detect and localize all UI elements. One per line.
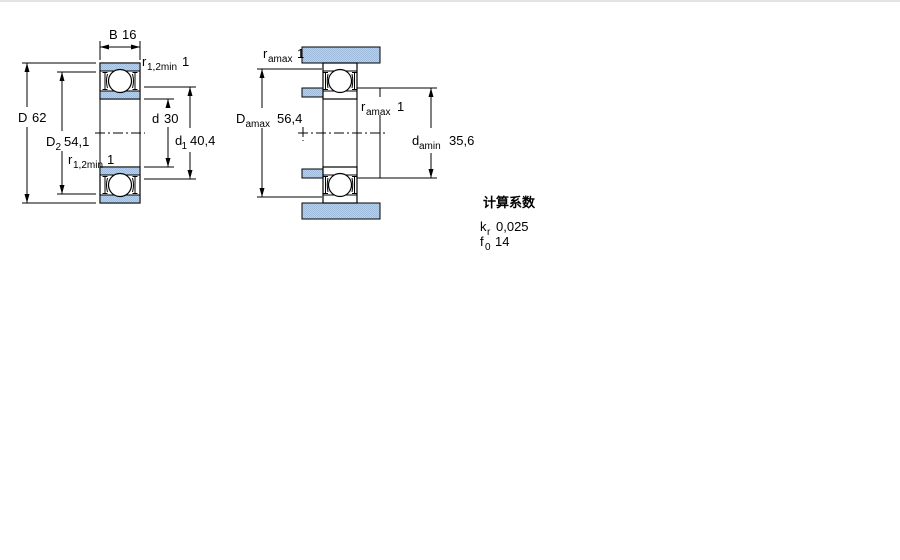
dim-subscript: 1,2min [147,62,177,73]
bearing-section-top [323,63,357,99]
factor-value: 14 [495,234,509,249]
dim-subscript: amin [419,141,441,152]
dim-value: 1 [397,99,404,114]
housing-top [302,47,380,63]
arrow-down [429,169,434,178]
dimension-d1: d 1 40,4 [144,87,215,179]
dim-value: 54,1 [64,134,89,149]
arrow-right [131,45,140,50]
arrow-down [260,188,265,197]
housing-bottom [302,203,380,219]
arrow-up [429,88,434,97]
dim-symbol: d [152,111,159,126]
dim-value: 40,4 [190,133,215,148]
dim-value: 30 [164,111,178,126]
ball [329,174,352,197]
label-r12min-top: r 1,2min 1 [142,54,189,73]
arrow-down [166,158,171,167]
arrow-up [166,99,171,108]
factor-subscript: 0 [485,242,491,253]
bearing-drawing: B 16 D 62 D 2 54,1 [0,0,900,560]
arrow-up [260,69,265,78]
factor-f0: f 0 14 [480,234,509,253]
bearing-section-top [100,63,140,99]
dim-value: 62 [32,110,46,125]
dim-subscript: amax [246,119,270,130]
right-view: D amax 56,4 d amin 35,6 r amax 1 r amax … [236,46,474,219]
calculation-factors-heading: 计算系数 [483,195,536,210]
factor-value: 0,025 [496,219,529,234]
dim-symbol: D [46,134,55,149]
arrow-down [25,194,30,203]
factor-subscript: r [487,227,491,238]
dim-value: 1 [107,152,114,167]
bearing-section-bottom [323,167,357,203]
shaft-shoulder-top [302,88,323,97]
ball [109,70,132,93]
arrow-down [188,170,193,179]
dimension-D2: D 2 54,1 [46,72,96,194]
dim-value: 1 [297,46,304,61]
factor-symbol: k [480,219,487,234]
dim-subscript: amax [268,54,292,65]
label-ramax-top: r amax 1 [263,46,304,65]
arrow-down [60,185,65,194]
label-ramax-middle: r amax 1 [361,99,404,118]
dimension-B: B 16 [100,27,140,60]
dim-symbol: B [109,27,118,42]
ball [109,174,132,197]
arrow-up [60,72,65,81]
ball [329,70,352,93]
dim-subscript: amax [366,107,390,118]
shaft-shoulder-bottom [302,169,323,178]
dimension-D: D 62 [18,63,96,203]
bearing-drawing-page: B 16 D 62 D 2 54,1 [0,0,900,560]
calculation-factors: 计算系数 k r 0,025 f 0 14 [480,195,536,253]
dimension-d: d 30 [144,99,178,167]
arrow-up [188,87,193,96]
dim-value: 56,4 [277,111,302,126]
dim-subscript: 1 [182,141,188,152]
dim-value: 16 [122,27,136,42]
arrow-left [100,45,109,50]
dim-symbol: D [236,111,245,126]
dim-value: 1 [182,54,189,69]
dim-subscript: 2 [56,142,62,153]
dim-symbol: D [18,110,27,125]
factor-symbol: f [480,234,484,249]
left-view: B 16 D 62 D 2 54,1 [18,27,215,203]
bearing-section-bottom [100,167,140,203]
arrow-up [25,63,30,72]
dim-value: 35,6 [449,133,474,148]
dimension-damin: d amin 35,6 [412,88,474,178]
dim-subscript: 1,2min [73,160,103,171]
